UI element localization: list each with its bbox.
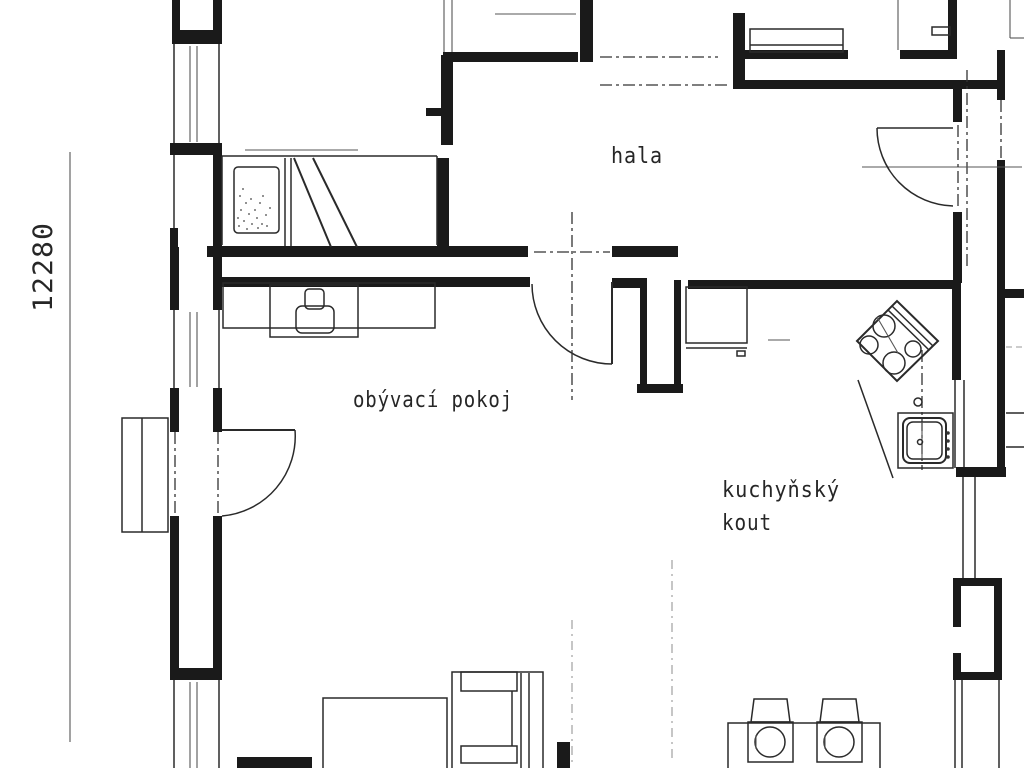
entrance-door-swing — [222, 430, 295, 516]
bed-pillow — [234, 167, 279, 233]
bed — [222, 150, 437, 247]
label-kitchenette-line1: kuchyňský — [722, 478, 840, 503]
burner — [873, 315, 895, 337]
partition-wall — [637, 280, 683, 393]
sink-drain — [918, 440, 923, 445]
faucet — [914, 398, 922, 406]
entrance-door — [122, 418, 295, 532]
living-room-table — [323, 698, 447, 768]
sink — [898, 398, 953, 468]
dimension-text: 12280 — [28, 222, 59, 312]
bottom-wall-fragments — [237, 742, 570, 768]
hall-walls — [443, 0, 997, 89]
burner — [883, 352, 905, 374]
dining-chair — [748, 699, 793, 762]
bedroom-walls — [207, 0, 528, 257]
sideboard-desk — [223, 283, 435, 337]
burner — [860, 336, 878, 354]
label-living-room: obývací pokoj — [353, 388, 513, 413]
room-labels: hala obývací pokoj kuchyňský kout — [353, 144, 840, 536]
top-room-furniture — [750, 0, 950, 52]
burner — [905, 341, 921, 357]
floor-plan-drawing: 12280 — [0, 0, 1024, 768]
corridor-walls — [862, 0, 1024, 473]
floor-plan: 12280 — [0, 0, 1024, 768]
entrance-landing — [122, 418, 168, 532]
east-room — [1005, 289, 1024, 447]
bench — [750, 29, 843, 52]
armchair — [452, 672, 543, 768]
dining-chair — [817, 699, 862, 762]
right-wall-lower — [953, 477, 1002, 768]
label-hall: hala — [611, 144, 663, 169]
exterior-wall-left — [170, 0, 222, 768]
kitchen-cabinet — [686, 287, 747, 356]
desk-chair — [296, 289, 334, 333]
dimension-annotation: 12280 — [28, 152, 70, 742]
label-kitchenette-line2: kout — [722, 511, 772, 536]
pillow-stipple — [237, 188, 271, 230]
kitchen-walls — [688, 280, 1006, 477]
